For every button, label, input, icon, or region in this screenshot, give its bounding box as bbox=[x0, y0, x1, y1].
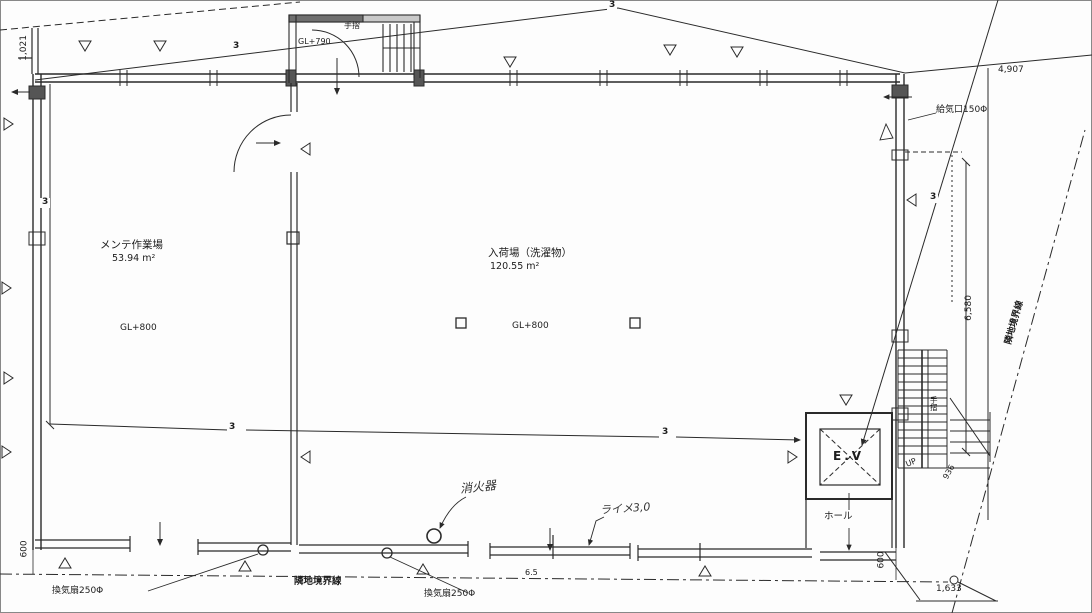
dim-1021: 1,021 bbox=[20, 35, 30, 61]
floor-drain bbox=[630, 318, 640, 328]
dim-6580: 6,580 bbox=[965, 295, 975, 321]
floor-plan-scan: メンテ作業場 53.94 m² GL+800 入荷場（洗濯物） 120.55 m… bbox=[0, 0, 1092, 613]
supply-air-label: 給気口150Φ bbox=[936, 106, 987, 116]
section-mark-3: 3 bbox=[227, 423, 237, 433]
room1-level: GL+800 bbox=[120, 324, 157, 334]
dim-600-left: 600 bbox=[21, 540, 31, 557]
leader-lines bbox=[148, 97, 936, 593]
boundary-label-bottom: 隣地境界線 bbox=[294, 577, 342, 587]
fan-label-left: 換気扇250Φ bbox=[52, 587, 103, 597]
dim-6-5: 6.5 bbox=[523, 569, 540, 578]
partition-wall bbox=[234, 83, 299, 545]
plan-linework bbox=[0, 0, 1092, 613]
room1-name: メンテ作業場 bbox=[100, 240, 163, 252]
scan-border bbox=[1, 1, 1092, 613]
triangle-markers bbox=[2, 41, 916, 576]
section-mark-3: 3 bbox=[40, 198, 50, 208]
room2-level: GL+800 bbox=[512, 322, 549, 332]
section-mark-3: 3 bbox=[660, 428, 670, 438]
elevator-shaft bbox=[806, 413, 892, 550]
dim-600-right: 600 bbox=[878, 551, 888, 568]
outer-walls bbox=[33, 74, 904, 550]
dim-1633: 1,633 bbox=[936, 585, 962, 595]
stairs-handrail-label: 手摺 bbox=[929, 396, 937, 411]
vestibule-handrail-label: 手摺 bbox=[344, 22, 360, 31]
symbols bbox=[258, 318, 640, 558]
fan-label-mid: 換気扇250Φ bbox=[424, 590, 475, 600]
fire-extinguisher-symbol bbox=[427, 529, 441, 543]
stairs bbox=[898, 350, 990, 468]
hall-label: ホール bbox=[824, 512, 853, 522]
floor-drain bbox=[456, 318, 466, 328]
bottom-wall bbox=[35, 522, 896, 561]
section-mark-3: 3 bbox=[231, 42, 241, 52]
fan-symbol bbox=[258, 545, 268, 555]
section-mark-3: 3 bbox=[607, 1, 617, 11]
room1-area: 53.94 m² bbox=[112, 254, 155, 264]
dim-4907: 4,907 bbox=[998, 66, 1024, 76]
elevator-label: E.V bbox=[833, 450, 864, 463]
room2-name: 入荷場（洗濯物） bbox=[488, 248, 572, 260]
room2-area: 120.55 m² bbox=[490, 262, 539, 272]
vestibule-level: GL+790 bbox=[298, 38, 331, 47]
section-mark-3: 3 bbox=[928, 193, 938, 203]
